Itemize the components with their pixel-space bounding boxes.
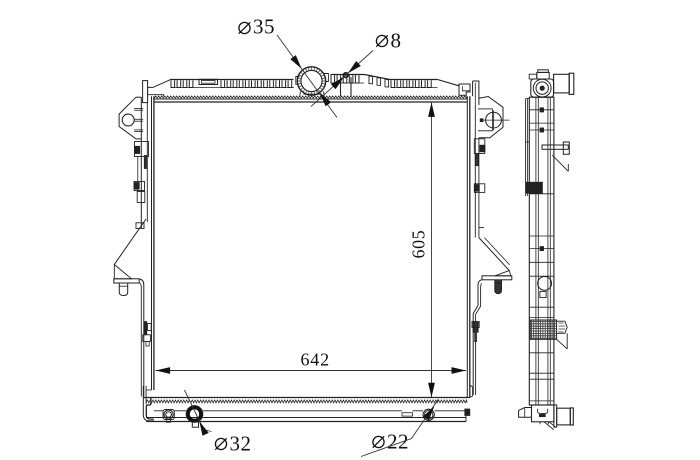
svg-text:605: 605 (409, 230, 429, 259)
svg-text:22: 22 (387, 430, 409, 454)
svg-text:32: 32 (230, 432, 252, 456)
svg-text:8: 8 (391, 29, 402, 53)
svg-text:35: 35 (253, 15, 275, 39)
svg-text:642: 642 (301, 350, 330, 370)
